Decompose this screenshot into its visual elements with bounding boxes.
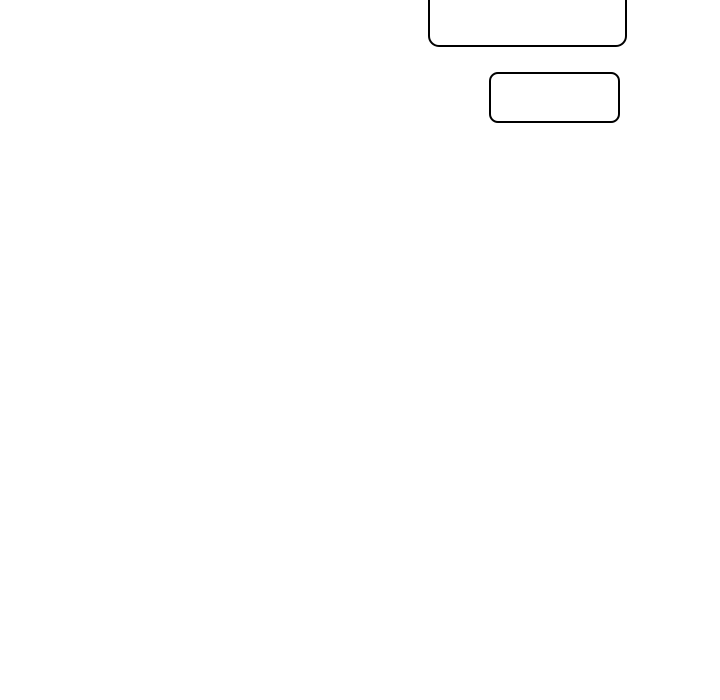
diagram-node-bottom (489, 72, 620, 123)
diagram-node-top (428, 0, 627, 47)
diagram-canvas (0, 0, 720, 700)
